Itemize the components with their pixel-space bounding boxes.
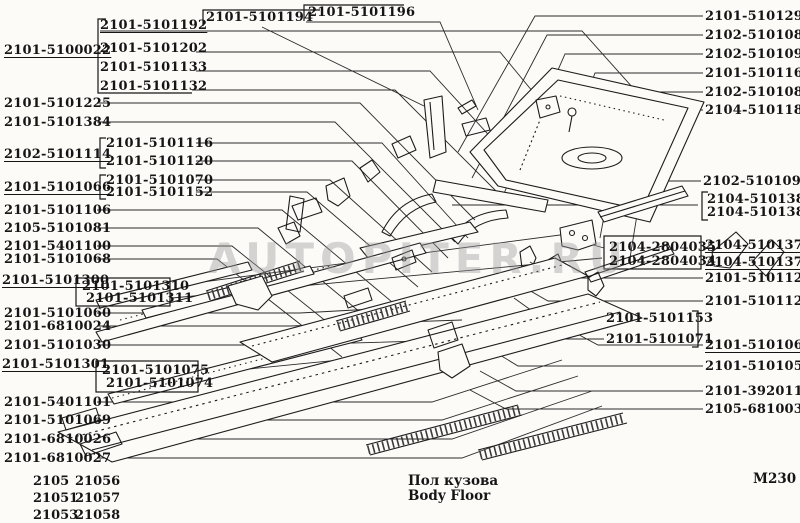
sheet-title-ru: Пол кузова [408,474,498,488]
part-2101-5101311: 2101-5101311 [86,292,193,305]
part-2101-5101069: 2101-5101069 [4,414,111,427]
part-2101-5101384: 2101-5101384 [4,116,111,129]
model-table: 2105 21056 21051 21057 21053 21058 [33,474,120,523]
part-2101-5101192[interactable]: 2101-5101192 [100,19,207,32]
model-code: 21056 [75,474,120,489]
part-2101-5101067[interactable]: 2101-5101067 [705,339,800,352]
model-code: 21058 [75,508,120,523]
part-2101-5101122: 2101-5101122 [705,272,800,285]
part-2104-2804034: 2104-2804034 [609,255,716,268]
part-2104-5101373[interactable]: 2104-5101373 [705,239,800,252]
watermark: AUTOPITER.RU [208,234,629,283]
part-2101-5101225: 2101-5101225 [4,97,111,110]
sheet-code: M230 [753,472,796,486]
part-2101-5101120: 2101-5101120 [106,155,213,168]
part-2102-5101086: 2102-5101086 [705,29,800,42]
part-2102-5101082: 2102-5101082 [705,86,800,99]
part-2101-5101132: 2101-5101132 [100,80,207,93]
model-code: 21051 [33,491,75,506]
part-2101-6810024: 2101-6810024 [4,320,111,333]
model-code: 2105 [33,474,75,489]
part-2101-6810026: 2101-6810026 [4,433,111,446]
part-2101-5101301[interactable]: 2101-5101301 [2,358,109,371]
part-2101-5101116: 2101-5101116 [106,137,213,150]
part-2101-5101153: 2101-5101153 [606,312,713,325]
part-2101-3920110: 2101-3920110 [705,385,800,398]
part-2101-5101290: 2101-5101290 [705,10,800,23]
part-2105-6810030: 2105-6810030 [705,403,800,416]
part-2101-5101066[interactable]: 2101-5101066 [4,181,111,194]
part-2102-5101114[interactable]: 2102-5101114 [4,148,111,161]
part-2101-5101030: 2101-5101030 [4,339,111,352]
part-2101-5101152: 2101-5101152 [106,186,213,199]
part-2101-5101068: 2101-5101068 [4,253,111,266]
part-2105-5101081: 2105-5101081 [4,222,111,235]
part-2101-6810027: 2101-6810027 [4,452,111,465]
sheet-title-en: Body Floor [408,489,490,503]
part-2104-5101182: 2104-5101182 [705,104,800,117]
part-2101-5101126: 2101-5101126 [705,295,800,308]
part-2104-5101380: 2104-5101380 [707,206,800,219]
part-2101-5101202: 2101-5101202 [100,42,207,55]
part-2101-5401101: 2101-5401101 [4,396,111,409]
part-2101-5101133: 2101-5101133 [100,61,207,74]
part-2101-5101169: 2101-5101169 [705,67,800,80]
part-2101-5101194: 2101-5101194 [206,11,313,24]
model-code: 21053 [33,508,75,523]
part-2101-5101106: 2101-5101106 [4,204,111,217]
part-2101-5101074: 2101-5101074 [106,377,213,390]
part-2101-5101071: 2101-5101071 [606,333,713,346]
model-code: 21057 [75,491,120,506]
part-2101-5101050: 2101-5101050 [705,360,800,373]
part-2102-5101092: 2102-5101092 [705,48,800,61]
parts-diagram-sheet: AUTOPITER.RU 2101-5100022 2101-5101192 2… [0,0,800,523]
part-2101-5100022[interactable]: 2101-5100022 [4,44,111,57]
part-2101-5101196: 2101-5101196 [308,6,415,19]
part-2104-2804035: 2104-2804035 [609,241,716,254]
part-2104-5101372[interactable]: 2104-5101372 [705,256,800,269]
part-2102-5101091: 2102-5101091 [703,175,800,188]
